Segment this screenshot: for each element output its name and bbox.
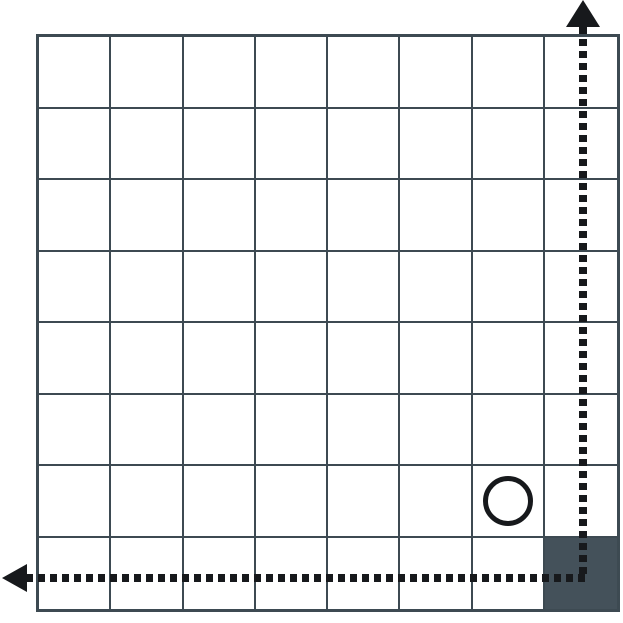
grid-cell — [184, 109, 256, 181]
grid-cell — [473, 37, 545, 109]
grid-cell — [111, 252, 183, 324]
grid-cell — [328, 180, 400, 252]
up-arrow-head-icon — [566, 0, 600, 27]
grid-cell — [256, 466, 328, 538]
left-arrow-head-icon — [2, 564, 27, 592]
grid-cell — [328, 395, 400, 467]
grid-cell — [39, 395, 111, 467]
grid-cell — [256, 395, 328, 467]
grid-cell — [39, 180, 111, 252]
grid-cell — [256, 180, 328, 252]
grid-cell — [184, 180, 256, 252]
grid-cell — [39, 252, 111, 324]
grid-cell — [328, 252, 400, 324]
grid-cell — [111, 109, 183, 181]
left-arrow-dotted-line — [26, 574, 586, 582]
grid-cell — [400, 466, 472, 538]
grid-cell — [184, 37, 256, 109]
grid-cell — [184, 395, 256, 467]
grid-cell — [400, 109, 472, 181]
grid-cell — [111, 323, 183, 395]
grid-cell — [473, 466, 545, 538]
grid-cell — [256, 37, 328, 109]
grid-cell — [473, 395, 545, 467]
grid-cell — [39, 109, 111, 181]
grid-cell — [39, 466, 111, 538]
grid-cell — [473, 252, 545, 324]
grid-cell — [328, 109, 400, 181]
grid-cell — [400, 395, 472, 467]
grid-cell — [256, 252, 328, 324]
grid-cell — [473, 180, 545, 252]
grid-cell — [184, 323, 256, 395]
circle-marker — [483, 476, 533, 526]
grid-cell — [39, 37, 111, 109]
grid-cell — [400, 37, 472, 109]
grid-cell — [328, 323, 400, 395]
grid-cell — [184, 252, 256, 324]
grid-cell — [400, 252, 472, 324]
grid-cell — [400, 180, 472, 252]
grid-cell — [111, 466, 183, 538]
grid-cell — [111, 37, 183, 109]
grid-cell — [473, 109, 545, 181]
grid — [36, 34, 620, 612]
grid-cell — [328, 37, 400, 109]
grid-cell — [328, 466, 400, 538]
up-arrow-dotted-line — [579, 27, 587, 579]
grid-cell — [184, 466, 256, 538]
grid-cell — [256, 323, 328, 395]
grid-cell — [39, 323, 111, 395]
grid-cell — [111, 395, 183, 467]
grid-cell — [400, 323, 472, 395]
diagram-canvas — [0, 0, 623, 623]
grid-cell — [111, 180, 183, 252]
grid-cell — [256, 109, 328, 181]
grid-cell — [473, 323, 545, 395]
